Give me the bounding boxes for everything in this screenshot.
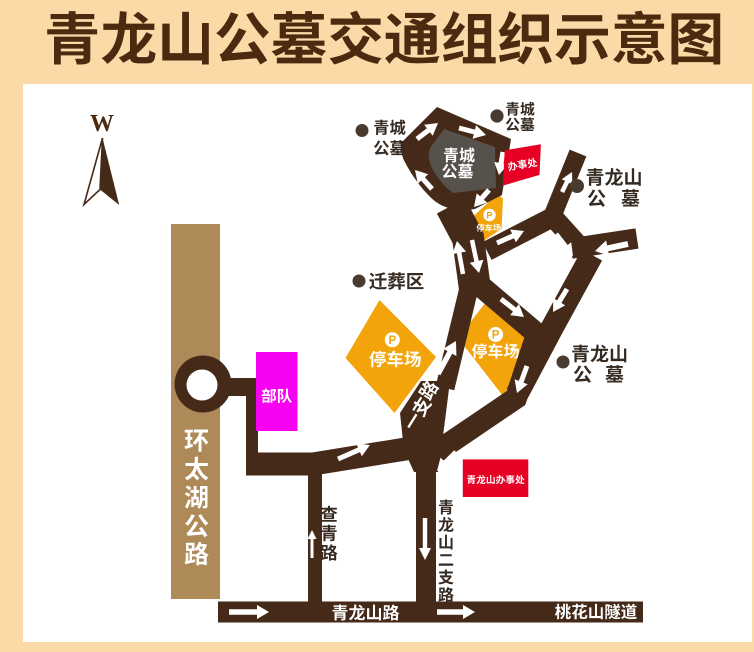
svg-text:P: P xyxy=(388,335,396,347)
svg-text:P: P xyxy=(486,210,492,220)
svg-text:P: P xyxy=(492,330,500,342)
svg-text:W: W xyxy=(90,111,114,137)
